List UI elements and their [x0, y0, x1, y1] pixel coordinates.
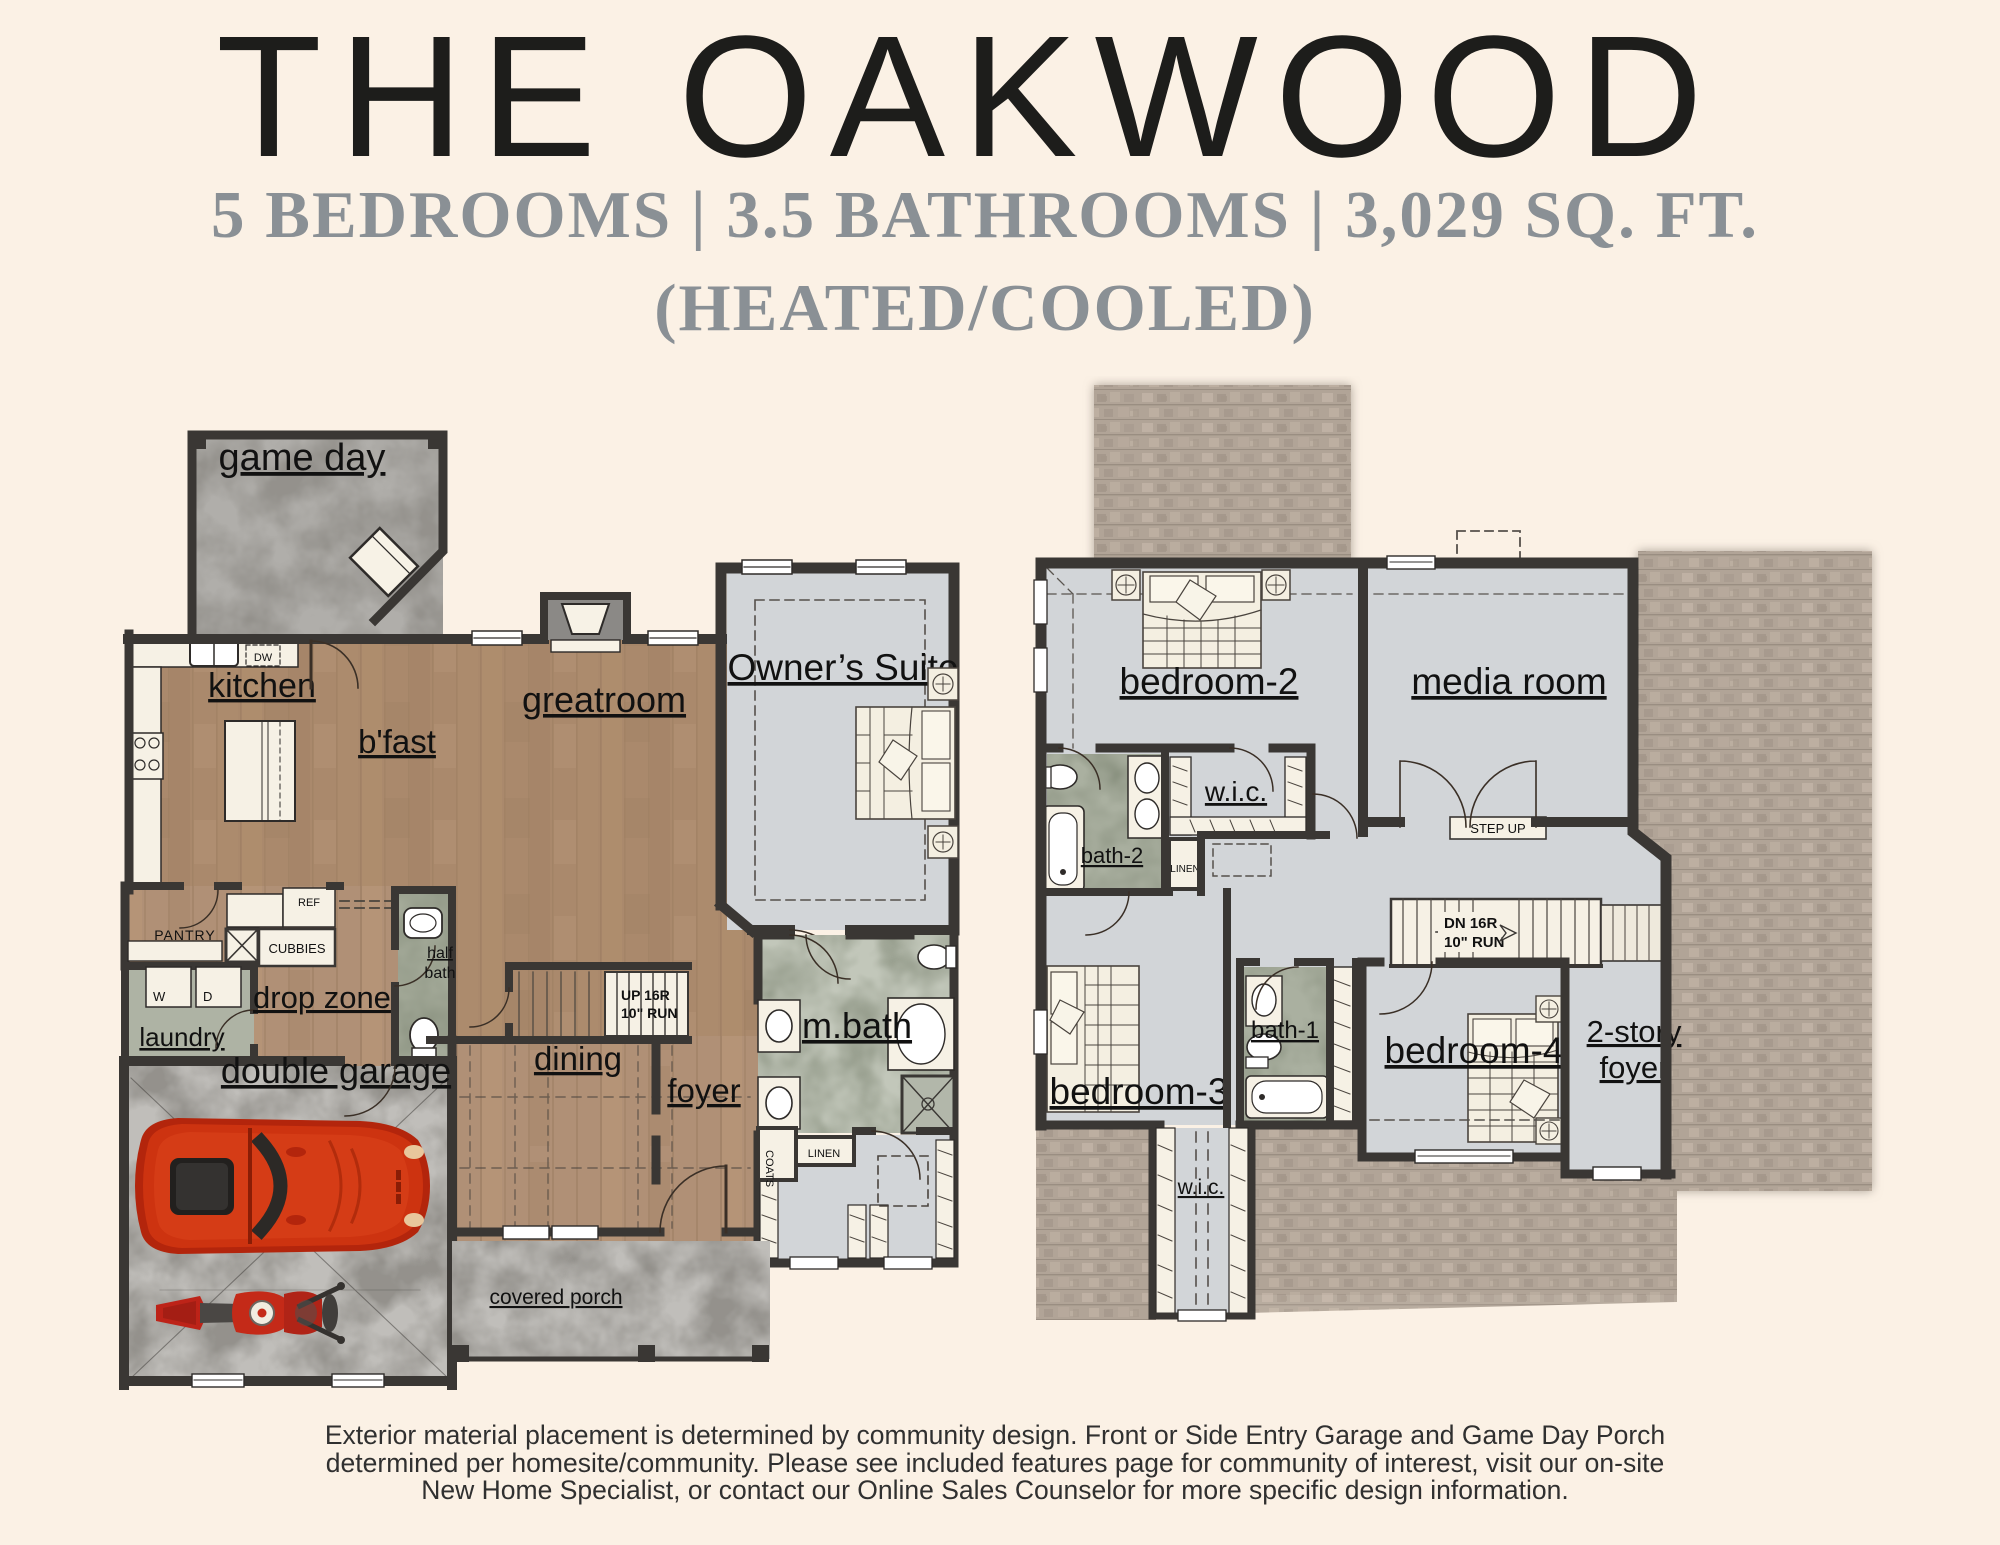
- svg-text:bedroom-4: bedroom-4: [1385, 1030, 1564, 1071]
- svg-text:10" RUN: 10" RUN: [621, 1005, 677, 1021]
- svg-text:b'fast: b'fast: [358, 723, 436, 760]
- svg-text:bedroom-2: bedroom-2: [1120, 661, 1299, 702]
- svg-text:double garage: double garage: [221, 1050, 451, 1091]
- svg-text:dining: dining: [534, 1040, 622, 1077]
- svg-text:5 BEDROOMS | 3.5 BATHROOMS | 3: 5 BEDROOMS | 3.5 BATHROOMS | 3,029 SQ. F…: [211, 178, 1759, 252]
- svg-text:W: W: [153, 989, 166, 1004]
- svg-text:bedroom-3: bedroom-3: [1050, 1071, 1229, 1112]
- svg-text:Exterior material placement is: Exterior material placement is determine…: [325, 1420, 1665, 1450]
- svg-text:determined per homesite/commun: determined per homesite/community. Pleas…: [326, 1448, 1664, 1478]
- svg-text:drop zone: drop zone: [253, 980, 391, 1015]
- svg-text:REF: REF: [298, 897, 320, 909]
- svg-text:w.i.c.: w.i.c.: [1177, 1176, 1225, 1199]
- svg-text:foyer: foyer: [1600, 1050, 1669, 1085]
- svg-text:m.bath: m.bath: [802, 1005, 912, 1046]
- svg-text:bath-2: bath-2: [1081, 843, 1143, 868]
- svg-text:foyer: foyer: [667, 1072, 740, 1109]
- svg-text:bath: bath: [424, 965, 455, 982]
- svg-text:Owner’s Suite: Owner’s Suite: [727, 647, 958, 688]
- svg-text:laundry: laundry: [139, 1022, 224, 1052]
- svg-text:10" RUN: 10" RUN: [1444, 934, 1504, 951]
- svg-text:half: half: [427, 945, 453, 962]
- svg-text:New Home Specialist, or contac: New Home Specialist, or contact our Onli…: [421, 1475, 1568, 1505]
- svg-text:bath-1: bath-1: [1251, 1017, 1319, 1044]
- svg-text:kitchen: kitchen: [208, 667, 316, 705]
- svg-text:w.i.c.: w.i.c.: [1204, 776, 1267, 807]
- svg-text:LINEN: LINEN: [808, 1148, 840, 1160]
- svg-text:D: D: [203, 989, 212, 1004]
- svg-text:DN 16R: DN 16R: [1444, 915, 1498, 932]
- svg-text:DW: DW: [254, 652, 273, 664]
- svg-text:LINEN: LINEN: [1170, 864, 1199, 875]
- svg-text:game day: game day: [219, 437, 386, 479]
- svg-text:THE OAKWOOD: THE OAKWOOD: [216, 0, 1720, 193]
- svg-text:STEP UP: STEP UP: [1470, 821, 1525, 836]
- svg-text:media room: media room: [1411, 661, 1606, 702]
- svg-text:(HEATED/COOLED): (HEATED/COOLED): [654, 271, 1316, 345]
- svg-text:UP 16R: UP 16R: [621, 987, 670, 1003]
- svg-text:greatroom: greatroom: [522, 679, 686, 720]
- svg-text:CUBBIES: CUBBIES: [268, 941, 325, 956]
- svg-text:COATS: COATS: [763, 1150, 775, 1187]
- svg-text:covered porch: covered porch: [489, 1286, 622, 1309]
